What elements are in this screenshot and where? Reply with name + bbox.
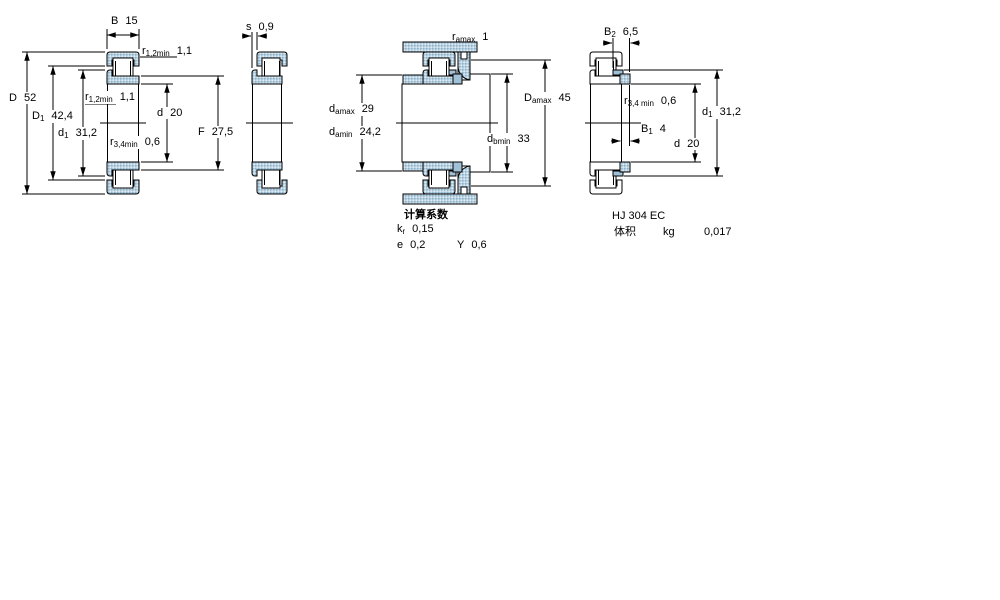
shaft-abutment-left-top	[403, 75, 423, 84]
figure-displacement-view	[242, 32, 293, 194]
drawing-linework	[0, 0, 1000, 600]
hj-mass-label: 体积	[614, 226, 636, 238]
calc-factor-kr: kr0,15	[397, 223, 434, 236]
dim-label-B1: B14	[641, 123, 666, 136]
calc-factors-title: 计算系数	[404, 209, 448, 221]
dim-label-D1: D142,4	[31, 110, 74, 123]
relief-groove-top	[461, 52, 467, 59]
dim-label-d1-hj: d131,2	[701, 106, 742, 119]
housing-bottom	[403, 194, 477, 204]
hj-designation: HJ 304 EC	[612, 210, 665, 222]
dim-label-Da-max: Damax45	[523, 92, 572, 105]
dim-label-s: s0,9	[246, 21, 274, 33]
dim-label-db-min: dbmin33	[486, 133, 531, 146]
dim-label-F: F27,5	[197, 126, 234, 138]
hj-ring-body-bottom	[453, 162, 462, 172]
dim-label-D: D52	[8, 92, 37, 104]
dim-label-r12-top: r1,2min1,1	[142, 45, 192, 58]
dim-label-d-hj: d20	[673, 138, 700, 150]
dim-label-r12-mid: r1,2min1,1	[84, 91, 136, 104]
dim-label-B2: B26,5	[604, 26, 638, 39]
figure-abutment-view	[356, 42, 551, 204]
dim-label-d1: d131,2	[57, 127, 98, 140]
bearing-technical-drawing: B15 r1,2min1,1 D52 D142,4 d131,2 r1,2min…	[0, 0, 1000, 600]
dim-label-da-min: damin24,2	[328, 126, 382, 139]
hj-mass-value: 0,017	[704, 226, 732, 238]
hj-ring-body-top	[453, 74, 462, 84]
relief-groove-bottom	[461, 187, 467, 194]
dim-label-r34: r3,4min0,6	[109, 136, 161, 149]
hj-mass-unit: kg	[663, 226, 675, 238]
dim-label-da-max: damax29	[328, 103, 375, 116]
dim-label-r34-hj: r3,4 min0,6	[624, 95, 676, 108]
dim-label-ra: ramax1	[452, 31, 488, 44]
shaft-abutment-left-bottom	[403, 162, 423, 171]
hj-ring-body-top	[620, 74, 630, 84]
dim-label-B: B15	[111, 15, 138, 27]
calc-factor-e: e0,2	[397, 239, 425, 251]
dim-label-d: d20	[156, 107, 183, 119]
hj-ring-body-bottom	[620, 162, 630, 172]
calc-factor-Y: Y0,6	[457, 239, 487, 251]
